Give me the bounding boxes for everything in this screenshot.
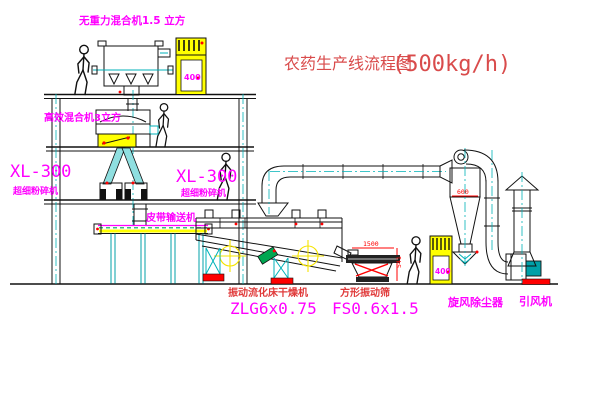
sieve-label: 方形振动筛 [340,286,390,299]
worker-figure [156,104,169,147]
conveyor-legs [111,234,203,284]
mill-left-model-label: XL-300 [10,162,71,182]
process-flow-diagram: 400 [0,0,600,403]
motor-fitting [258,247,278,264]
indicator-dot [201,42,204,45]
belt-conveyor-label: 皮带输送机 [145,211,196,224]
fan-label: 引风机 [519,294,552,308]
worker-figure [75,45,89,94]
exhaust-stack [506,172,538,283]
dryer-top-nozzles [205,210,326,218]
belt-conveyor [94,224,212,284]
sieve-length-dimension-text: 1500 [363,240,379,248]
exhaust-duct [258,164,446,216]
control-cabinet-lower: 400 [430,236,452,284]
gravityless-mixer [92,41,173,95]
dryer-model-label: ZLG6x0.75 [230,299,317,318]
center-mark [214,240,246,272]
mixer-feed-pipe [126,99,139,112]
y-splitter-duct [103,148,144,184]
mill-center-model-label: XL-300 [176,167,237,187]
diagram-capacity: (500kg/h) [392,52,511,77]
cabinet-text: 400 [184,73,201,82]
sieve-model-label: FS0.6x1.5 [332,299,419,318]
fan-base [522,279,550,285]
diagram-canvas: 400 [0,0,600,403]
control-cabinet-upper: 400 [176,38,206,95]
vibrating-sieve [346,248,400,282]
dryer-label: 振动流化床干燥机 [228,286,308,299]
mill-left-name-label: 超细粉碎机 [12,185,58,197]
fluid-bed-dryer [196,210,351,284]
cyclone-label: 旋风除尘器 [447,295,504,309]
cyclone-dimension-text: 600 [457,188,469,196]
induced-draft-fan [506,254,550,285]
snap-dot [119,91,122,94]
worker-figure [407,237,421,284]
sieve-height-dimension-text: 541 [395,256,403,268]
center-mark [292,240,324,272]
high-efficiency-mixer-label: 高效混合机3立方 [44,111,121,124]
gravityless-mixer-label: 无重力混合机1.5 立方 [78,14,186,27]
dryer-flange-ticks [220,218,320,228]
cabinet-text: 400 [435,267,451,276]
mill-center-name-label: 超细粉碎机 [180,187,226,199]
